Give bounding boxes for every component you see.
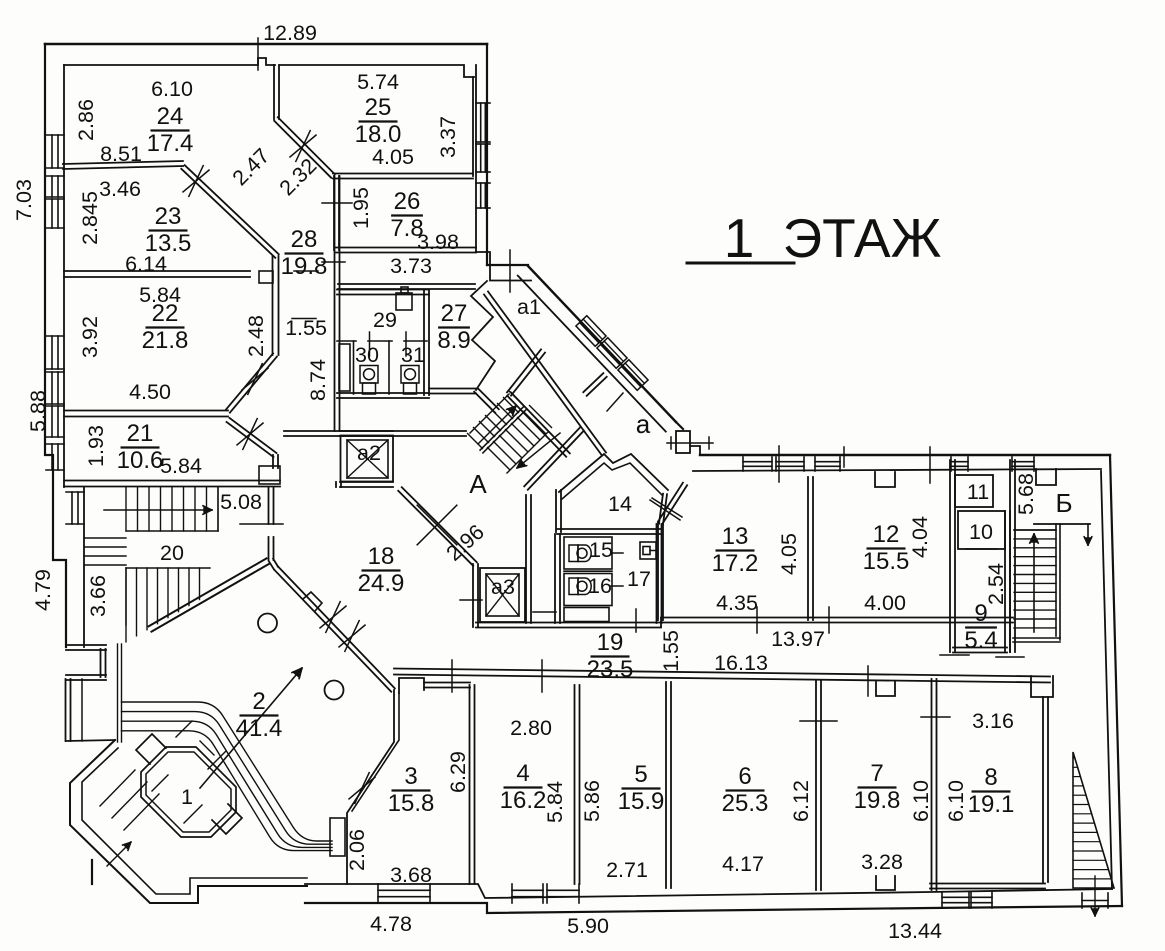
svg-text:2: 2 xyxy=(252,688,265,715)
svg-text:4.79: 4.79 xyxy=(31,569,55,611)
svg-text:26: 26 xyxy=(394,188,421,215)
svg-text:13: 13 xyxy=(722,523,749,550)
svg-text:2.845: 2.845 xyxy=(78,191,102,245)
svg-text:a1: a1 xyxy=(517,295,541,319)
svg-text:7.03: 7.03 xyxy=(12,179,36,221)
svg-text:Б: Б xyxy=(1055,488,1072,518)
svg-text:4.05: 4.05 xyxy=(372,145,414,169)
svg-text:15.9: 15.9 xyxy=(618,788,665,815)
svg-text:13.44: 13.44 xyxy=(888,919,942,943)
svg-text:3.98: 3.98 xyxy=(417,230,459,254)
svg-text:8.51: 8.51 xyxy=(100,142,142,166)
svg-text:30: 30 xyxy=(355,343,379,367)
svg-text:5.88: 5.88 xyxy=(26,390,50,432)
svg-text:17.4: 17.4 xyxy=(147,130,194,157)
svg-text:4.35: 4.35 xyxy=(716,591,758,615)
svg-text:2.48: 2.48 xyxy=(244,315,268,357)
svg-text:8.74: 8.74 xyxy=(306,359,330,401)
svg-text:20: 20 xyxy=(160,541,184,565)
svg-text:6.10: 6.10 xyxy=(151,77,193,101)
svg-text:18: 18 xyxy=(368,543,395,570)
svg-text:8: 8 xyxy=(984,764,997,791)
svg-text:16: 16 xyxy=(588,574,612,598)
svg-text:2.54: 2.54 xyxy=(984,563,1008,605)
svg-text:5.08: 5.08 xyxy=(220,490,262,514)
svg-text:5.74: 5.74 xyxy=(357,70,399,94)
svg-text:2.06: 2.06 xyxy=(345,829,369,871)
svg-text:17.2: 17.2 xyxy=(712,550,759,577)
svg-text:3: 3 xyxy=(404,763,417,790)
svg-text:5.84: 5.84 xyxy=(543,781,567,823)
svg-text:31: 31 xyxy=(401,343,425,367)
svg-text:19.1: 19.1 xyxy=(968,791,1015,818)
svg-text:7: 7 xyxy=(870,760,883,787)
svg-text:1.93: 1.93 xyxy=(84,425,108,467)
svg-text:27: 27 xyxy=(441,300,468,327)
svg-text:5.90: 5.90 xyxy=(567,914,609,938)
svg-text:28: 28 xyxy=(291,226,318,253)
svg-text:3.92: 3.92 xyxy=(78,316,102,358)
svg-text:6.10: 6.10 xyxy=(909,780,933,822)
svg-text:4.04: 4.04 xyxy=(908,516,932,558)
svg-text:4.78: 4.78 xyxy=(370,912,412,936)
svg-text:3.16: 3.16 xyxy=(972,709,1014,733)
svg-text:41.4: 41.4 xyxy=(236,715,283,742)
svg-text:24: 24 xyxy=(157,103,184,130)
svg-text:21: 21 xyxy=(127,420,154,447)
svg-text:12: 12 xyxy=(873,521,900,548)
svg-text:4.05: 4.05 xyxy=(777,533,801,575)
svg-text:12.89: 12.89 xyxy=(263,21,317,45)
svg-text:10: 10 xyxy=(969,520,993,544)
svg-text:15.5: 15.5 xyxy=(863,548,910,575)
svg-text:6: 6 xyxy=(738,763,751,790)
svg-text:1: 1 xyxy=(724,207,755,269)
svg-text:25: 25 xyxy=(365,94,392,121)
svg-text:19.8: 19.8 xyxy=(281,253,328,280)
svg-text:21.8: 21.8 xyxy=(142,327,189,354)
svg-text:a: a xyxy=(636,409,651,439)
svg-text:3.46: 3.46 xyxy=(99,177,141,201)
svg-text:25.3: 25.3 xyxy=(722,790,769,817)
svg-text:15.8: 15.8 xyxy=(388,790,435,817)
svg-text:a2: a2 xyxy=(357,441,381,465)
svg-text:1.55: 1.55 xyxy=(659,630,683,672)
svg-text:6.14: 6.14 xyxy=(125,252,167,276)
svg-text:5.68: 5.68 xyxy=(1014,473,1038,515)
svg-text:4: 4 xyxy=(516,760,529,787)
svg-text:3.28: 3.28 xyxy=(861,850,903,874)
svg-text:18.0: 18.0 xyxy=(355,121,402,148)
svg-text:6.10: 6.10 xyxy=(944,780,968,822)
svg-text:1: 1 xyxy=(181,785,193,809)
svg-text:16.2: 16.2 xyxy=(500,787,547,814)
svg-text:23.5: 23.5 xyxy=(587,656,634,683)
svg-text:5: 5 xyxy=(634,761,647,788)
svg-text:4.00: 4.00 xyxy=(864,591,906,615)
svg-text:10.6: 10.6 xyxy=(117,447,164,474)
svg-text:19: 19 xyxy=(597,629,624,656)
svg-text:5.86: 5.86 xyxy=(580,780,604,822)
svg-text:22: 22 xyxy=(152,300,179,327)
svg-text:3.68: 3.68 xyxy=(390,863,432,887)
svg-text:3.73: 3.73 xyxy=(390,254,432,278)
svg-text:2.86: 2.86 xyxy=(74,99,98,141)
svg-text:15: 15 xyxy=(589,538,613,562)
svg-text:6.29: 6.29 xyxy=(446,751,470,793)
svg-text:A: A xyxy=(469,469,487,499)
svg-text:1.95: 1.95 xyxy=(349,187,373,229)
svg-text:4.17: 4.17 xyxy=(722,852,764,876)
svg-text:1.55: 1.55 xyxy=(285,316,327,340)
svg-text:13.97: 13.97 xyxy=(771,627,825,651)
svg-text:24.9: 24.9 xyxy=(358,570,405,597)
svg-text:2.80: 2.80 xyxy=(510,716,552,740)
svg-text:16.13: 16.13 xyxy=(714,651,768,675)
svg-text:5.84: 5.84 xyxy=(160,454,202,478)
svg-text:4.50: 4.50 xyxy=(129,380,171,404)
svg-text:5.4: 5.4 xyxy=(964,627,997,654)
svg-text:14: 14 xyxy=(608,492,632,516)
svg-text:8.9: 8.9 xyxy=(437,327,470,354)
svg-text:6.12: 6.12 xyxy=(789,780,813,822)
svg-text:17: 17 xyxy=(627,567,651,591)
svg-text:29: 29 xyxy=(373,308,397,332)
svg-text:ЭТАЖ: ЭТАЖ xyxy=(783,207,942,269)
svg-text:3.66: 3.66 xyxy=(86,575,110,617)
svg-text:2.71: 2.71 xyxy=(606,858,648,882)
svg-text:19.8: 19.8 xyxy=(854,787,901,814)
svg-text:a3: a3 xyxy=(491,575,515,599)
svg-text:3.37: 3.37 xyxy=(436,116,460,158)
svg-text:23: 23 xyxy=(155,203,182,230)
svg-text:11: 11 xyxy=(967,480,989,504)
